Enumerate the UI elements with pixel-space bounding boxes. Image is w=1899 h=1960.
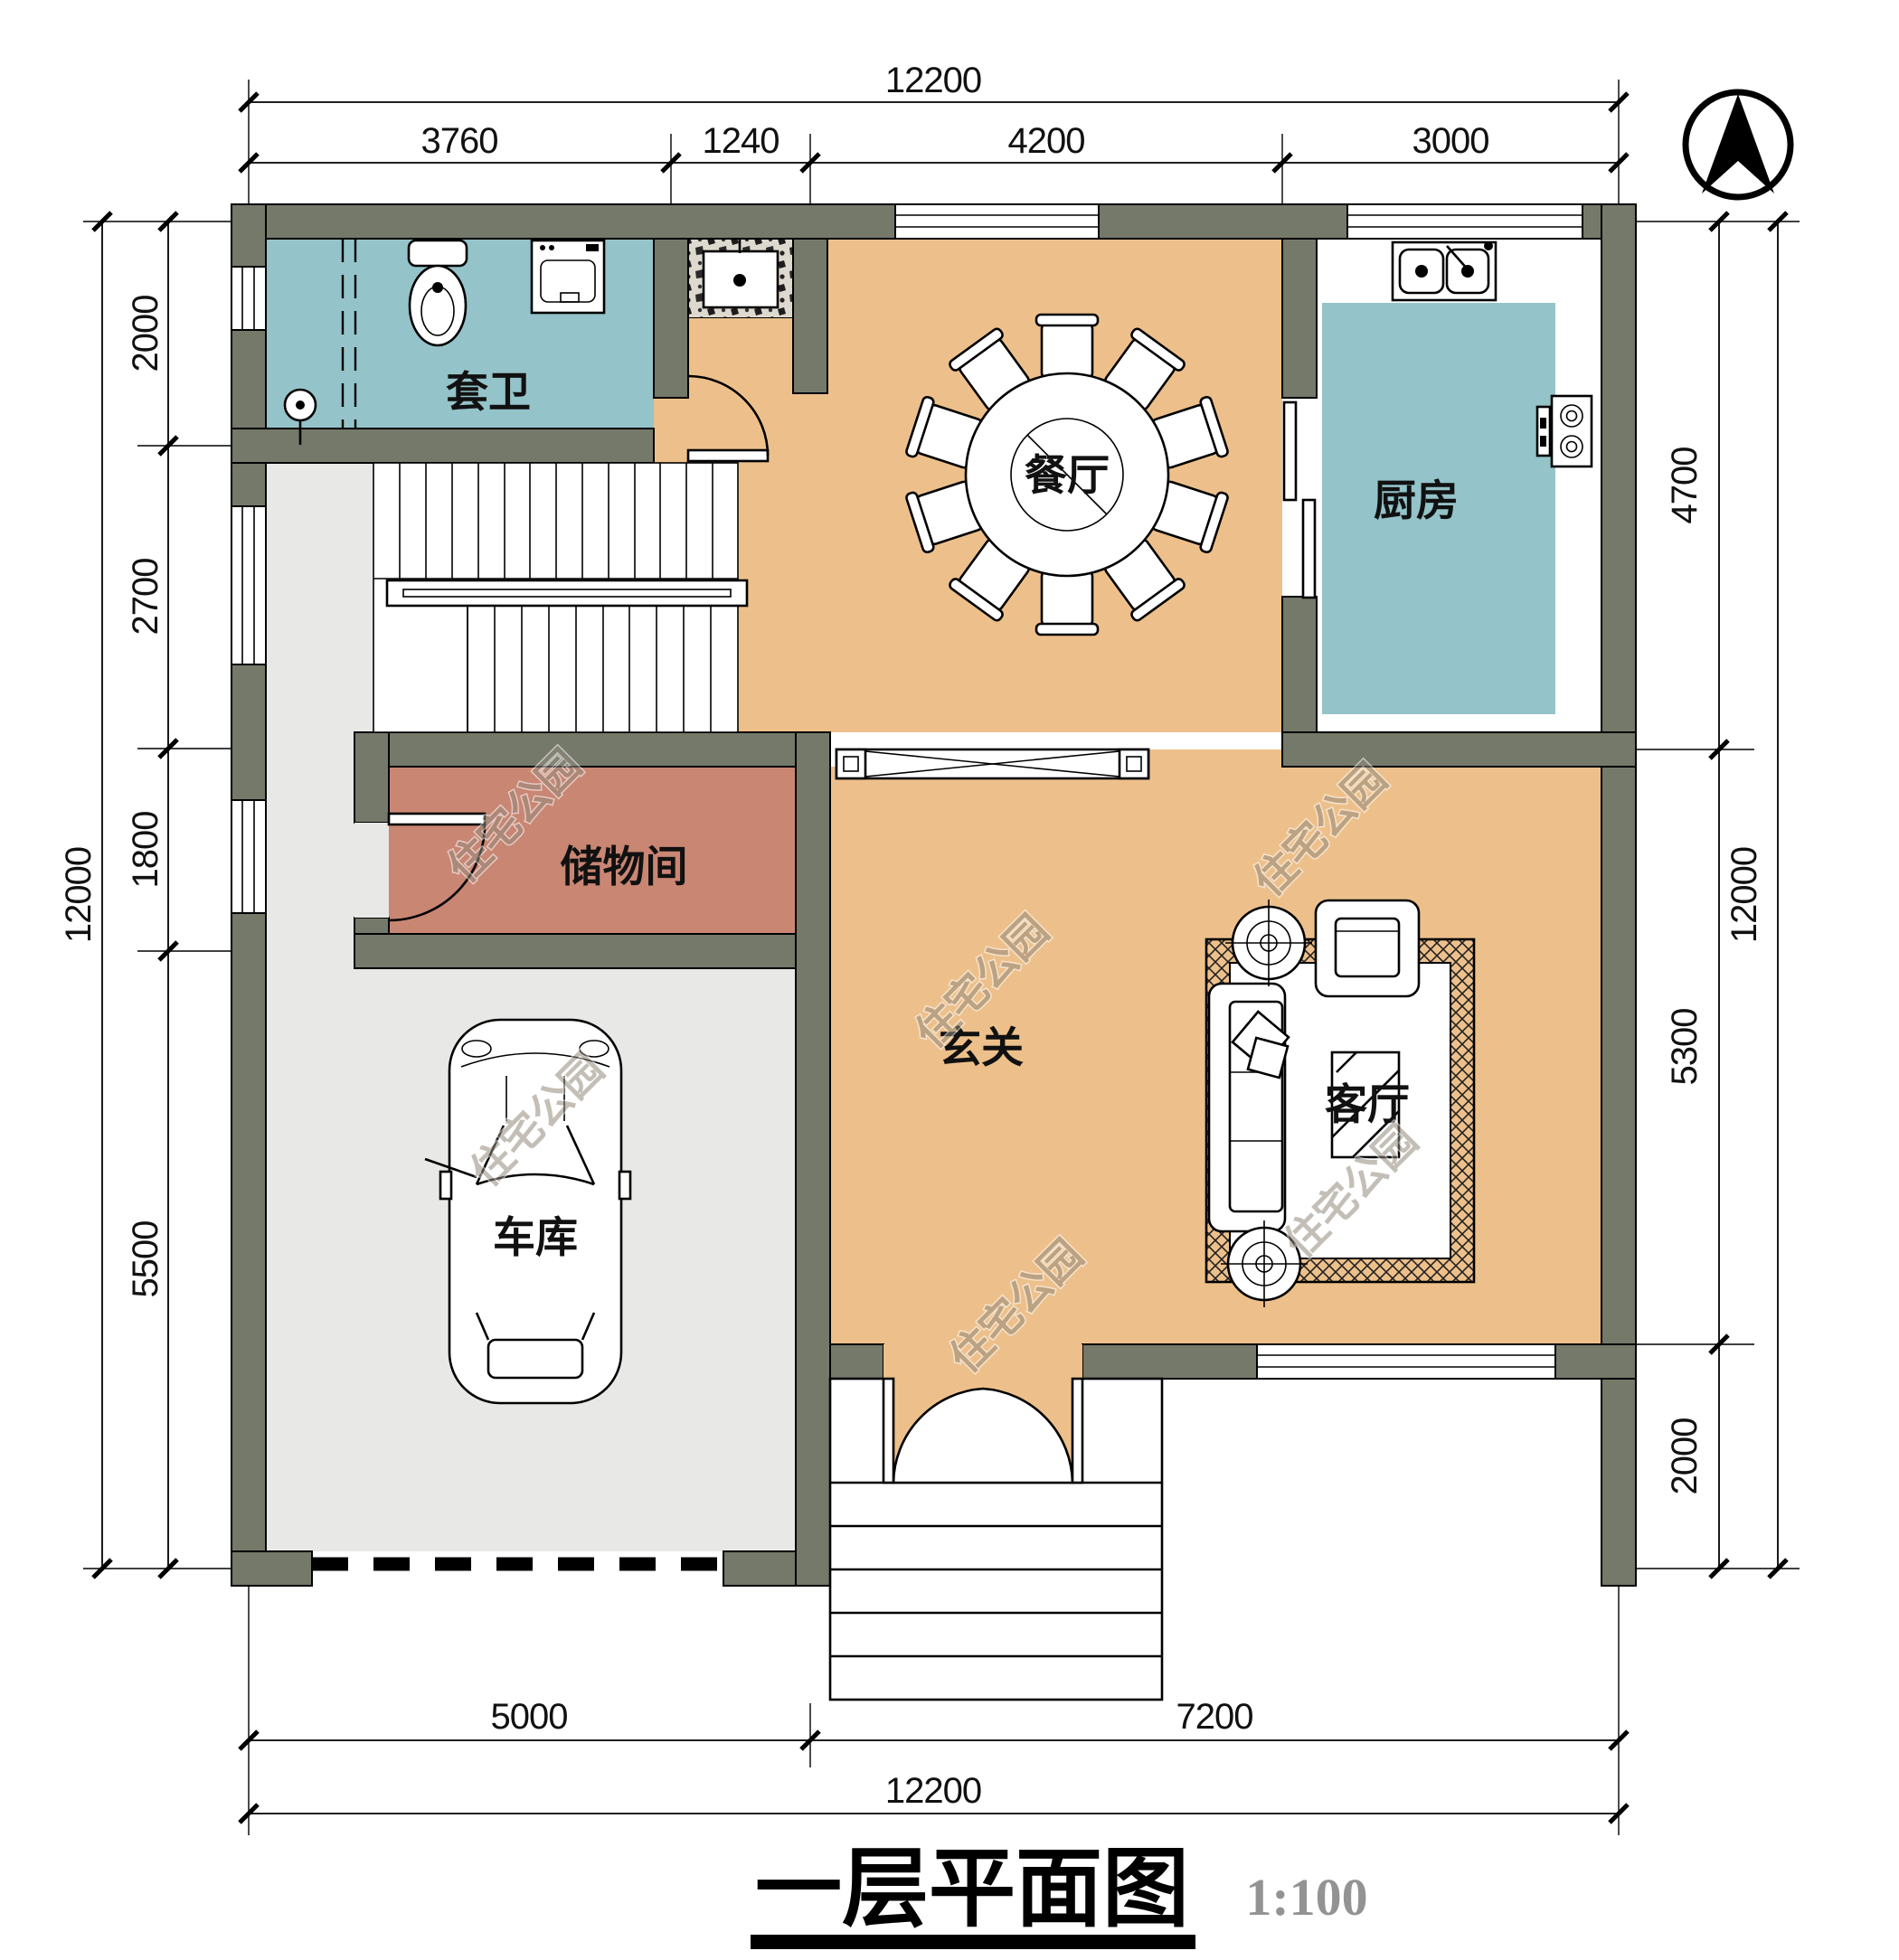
window-bathroom-left (231, 267, 266, 330)
wall-kitchen-bottom (1282, 732, 1636, 767)
wall-kitchen-left-upper (1282, 239, 1317, 398)
dim-bottom-total: 12200 (885, 1771, 981, 1811)
washing-machine (532, 240, 604, 313)
dim-top-seg-2: 4200 (1008, 121, 1085, 161)
window-stairs-left (231, 506, 266, 664)
dim-top: 12200 3760 1240 4200 3000 (240, 61, 1628, 204)
plan-scale: 1:100 (1245, 1868, 1367, 1927)
floor-plan-svg: 套卫 餐厅 厨房 储物间 玄关 车库 客厅 住宅公园 住宅公园 住宅公园 住宅公… (0, 0, 1899, 1960)
bathroom-door-floor (654, 398, 688, 463)
kitchen-sink (1393, 241, 1496, 300)
wall-entry-right (1082, 1344, 1257, 1379)
room-label-dining: 餐厅 (1025, 453, 1110, 500)
dim-top-total: 12200 (885, 61, 981, 100)
dim-right-seg-0: 4700 (1665, 448, 1705, 524)
dim-top-seg-3: 3000 (1412, 121, 1489, 161)
room-label-kitchen: 厨房 (1374, 478, 1459, 525)
hall-floor-nook (688, 318, 793, 429)
dim-right: 4700 5300 2000 12000 (1636, 212, 1800, 1578)
floor-plan-page: 套卫 餐厅 厨房 储物间 玄关 车库 客厅 住宅公园 住宅公园 住宅公园 住宅公… (0, 0, 1899, 1960)
title-block: 一层平面图 1:100 (751, 1841, 1368, 1949)
north-arrow-icon (1686, 92, 1790, 197)
dim-right-seg-2: 2000 (1665, 1418, 1705, 1495)
toilet (409, 240, 467, 345)
garage-floor-b (266, 732, 354, 968)
wall-bathroom-right (654, 239, 688, 398)
dim-left-seg-2: 1800 (126, 812, 165, 889)
dim-right-seg-1: 5300 (1665, 1009, 1705, 1086)
dim-left-seg-0: 2000 (126, 296, 165, 372)
window-living-bottom (1257, 1344, 1555, 1379)
dim-left-total: 12000 (59, 847, 99, 943)
wall-garage-bottom-left (231, 1551, 312, 1586)
dim-top-seg-0: 3760 (421, 121, 498, 161)
dim-top-seg-1: 1240 (703, 121, 779, 161)
window-storage-left (231, 800, 266, 913)
armchair (1316, 900, 1419, 996)
room-label-storage: 储物间 (561, 844, 688, 891)
room-label-bathroom: 套卫 (446, 370, 531, 417)
dim-left: 12000 2000 2700 1800 5500 (59, 212, 231, 1578)
staircase (373, 463, 747, 732)
sofa (1209, 984, 1289, 1231)
wall-garage-bottom-right (723, 1551, 796, 1586)
plan-title: 一层平面图 (755, 1841, 1189, 1937)
stair-handrail (387, 580, 747, 606)
wall-living-bottom (1555, 1344, 1636, 1379)
dim-bottom-seg-0: 5000 (491, 1697, 568, 1737)
wall-storage-left-upper (354, 732, 389, 823)
wall-hall-left (796, 732, 830, 1586)
wall-stairs-bottom (354, 732, 830, 767)
kitchen-sliding-door (1284, 402, 1315, 598)
dim-left-seg-1: 2700 (126, 559, 165, 636)
room-label-garage: 车库 (493, 1215, 578, 1262)
partition-screen (836, 749, 1148, 778)
dining-floor-left (793, 393, 827, 732)
dim-bottom-seg-1: 7200 (1176, 1697, 1253, 1737)
dim-left-seg-3: 5500 (126, 1221, 165, 1298)
window-dining-top (895, 204, 1099, 239)
garage-floor-a (266, 463, 373, 732)
wall-bathroom-bottom (231, 429, 654, 463)
wall-storage-bottom (354, 934, 830, 968)
title-underline (751, 1935, 1195, 1949)
gas-stove (1537, 396, 1592, 466)
window-kitchen-top (1347, 204, 1582, 239)
dim-right-total: 12000 (1724, 847, 1764, 943)
wall-nook-stub (793, 239, 827, 393)
